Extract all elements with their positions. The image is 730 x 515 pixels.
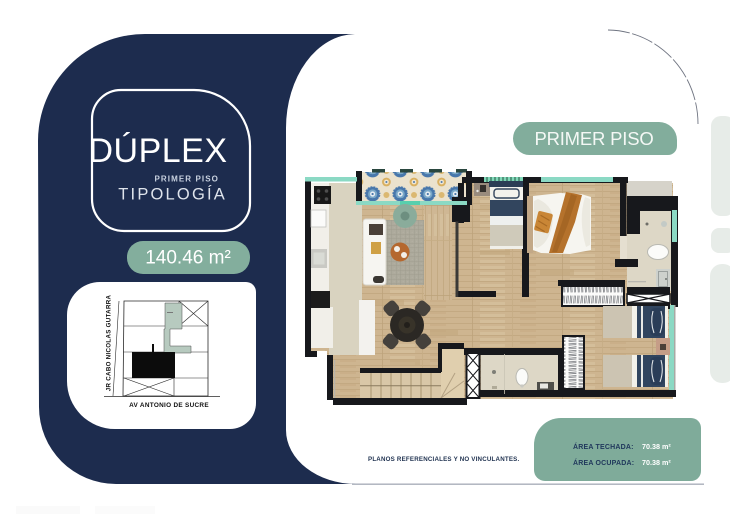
svg-text:ÁREA TECHADA:: ÁREA TECHADA: [573,442,634,451]
svg-text:PRIMER PISO: PRIMER PISO [154,175,219,184]
svg-text:ÁREA OCUPADA:: ÁREA OCUPADA: [573,458,634,467]
svg-text:JR CABO NICOLAS GUTARRA: JR CABO NICOLAS GUTARRA [106,295,113,392]
svg-text:TIPOLOGÍA: TIPOLOGÍA [118,185,227,204]
svg-text:70.38 m²: 70.38 m² [642,442,671,451]
svg-text:70.38 m²: 70.38 m² [642,458,671,467]
svg-text:AV ANTONIO DE SUCRE: AV ANTONIO DE SUCRE [129,402,209,409]
svg-text:PRIMER PISO: PRIMER PISO [534,128,653,149]
svg-text:DÚPLEX: DÚPLEX [88,132,227,170]
svg-text:PLANOS REFERENCIALES Y NO VINC: PLANOS REFERENCIALES Y NO VINCULANTES. [368,456,520,463]
svg-text:140.46 m²: 140.46 m² [145,248,231,269]
